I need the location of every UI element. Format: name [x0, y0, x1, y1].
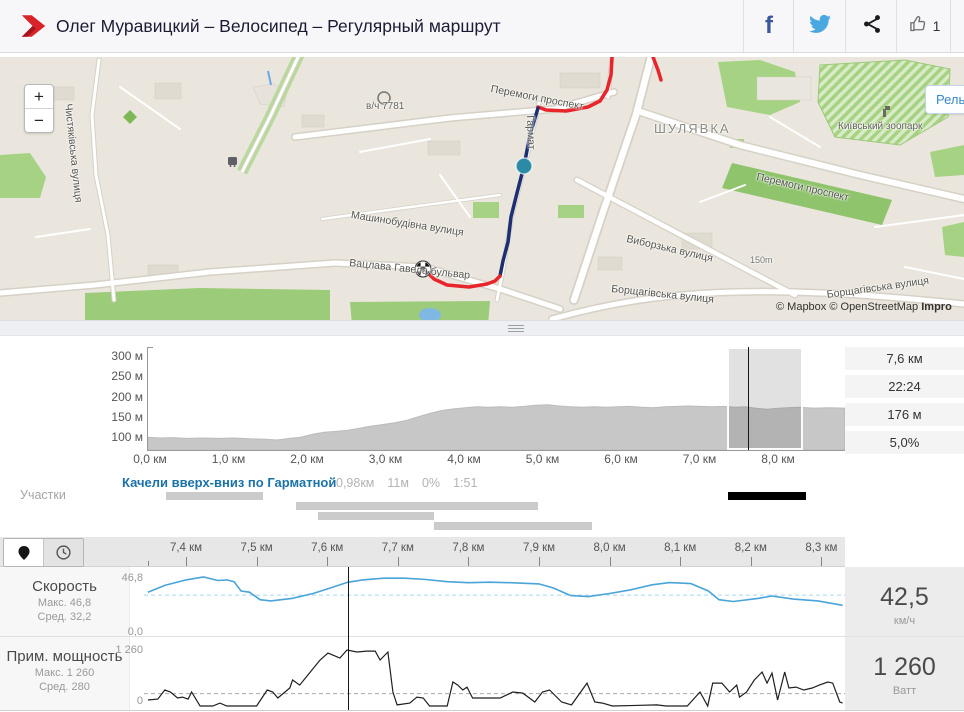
like-button[interactable]: 1	[896, 0, 951, 52]
segment-bar[interactable]	[318, 512, 434, 520]
share-icon	[861, 13, 883, 40]
ruler-tick	[539, 557, 540, 566]
segment-stat: 0,98км	[336, 476, 374, 490]
map-street-label: Гармат	[524, 115, 537, 150]
map-street-label: ШУЛЯВКА	[654, 121, 731, 136]
ruler-tick	[148, 561, 149, 566]
power-chart[interactable]	[130, 637, 845, 710]
elevation-y-tick: 250 м	[98, 369, 143, 383]
speed-current-value: 42,5	[845, 583, 964, 612]
ruler-tick	[257, 557, 258, 566]
ruler-label: 7,6 км	[302, 542, 352, 554]
elevation-y-tick: 200 м	[98, 390, 143, 404]
speed-unit: км/ч	[845, 615, 964, 627]
ruler-tick	[398, 557, 399, 566]
axis-mode-toggle	[3, 538, 84, 567]
elevation-x-tick: 4,0 км	[439, 452, 489, 466]
ruler-label: 7,4 км	[161, 542, 211, 554]
ruler-label: 7,8 км	[443, 542, 493, 554]
current-position-marker[interactable]	[516, 158, 532, 174]
site-logo-icon[interactable]	[20, 14, 47, 43]
elevation-stat-value: 22:24	[845, 375, 964, 398]
elevation-stat-value: 7,6 км	[845, 347, 964, 370]
power-max-label: Макс. 1 260	[0, 667, 129, 679]
elevation-y-tick: 150 м	[98, 410, 143, 424]
power-value-panel: 1 260 Ватт	[845, 637, 964, 710]
power-series	[148, 650, 843, 706]
route-red-stub	[653, 57, 661, 80]
elevation-x-tick: 0,0 км	[125, 452, 175, 466]
share-button[interactable]	[845, 0, 897, 52]
ruler-label: 8,1 км	[655, 542, 705, 554]
terrain-toggle-button[interactable]: Рель	[925, 85, 964, 114]
ruler-label: 7,5 км	[232, 542, 282, 554]
elevation-y-tick: 300 м	[98, 349, 143, 363]
elevation-x-axis	[147, 450, 962, 451]
power-unit: Ватт	[845, 685, 964, 697]
elevation-profile-chart[interactable]	[0, 334, 964, 460]
elevation-selection-window[interactable]	[727, 347, 803, 450]
segment-stat: 0%	[422, 476, 440, 490]
segment-title-link[interactable]: Качели вверх-вниз по Гарматной	[122, 475, 336, 490]
twitter-icon	[808, 12, 832, 41]
segment-bar-selected[interactable]	[728, 492, 806, 500]
map-zoom-control: + −	[24, 84, 54, 133]
facebook-share-button[interactable]: f	[743, 0, 794, 52]
ruler-tick	[186, 557, 187, 566]
ruler-tick	[821, 557, 822, 566]
elevation-x-tick: 7,0 км	[675, 452, 725, 466]
elevation-y-tick: 100 м	[98, 430, 143, 444]
segment-bar[interactable]	[434, 522, 592, 530]
ruler-tick	[468, 557, 469, 566]
map-street-label: в/ч 7781	[366, 101, 404, 112]
elevation-y-axis-top-tick	[147, 347, 153, 348]
bottom-cursor-line	[348, 567, 349, 710]
thumbs-up-icon	[908, 14, 928, 39]
elevation-y-axis	[147, 347, 148, 450]
segments-section-label: Участки	[20, 488, 66, 502]
comment-button[interactable]	[950, 0, 964, 52]
ruler-tick	[610, 557, 611, 566]
ruler-label: 7,7 км	[373, 542, 423, 554]
like-count: 1	[933, 18, 941, 34]
elevation-x-tick: 1,0 км	[204, 452, 254, 466]
ruler-label: 8,3 км	[796, 542, 846, 554]
segment-stats: 0,98км11м0%1:51	[336, 476, 477, 490]
speed-series	[148, 577, 843, 605]
elevation-cursor-line	[748, 347, 749, 450]
elevation-x-tick: 3,0 км	[361, 452, 411, 466]
ruler-tick	[680, 557, 681, 566]
bottom-divider	[0, 710, 964, 711]
time-mode-button[interactable]	[43, 539, 83, 566]
map-street-label: Київський зоопарк	[838, 121, 922, 132]
map-pin-icon	[17, 544, 31, 562]
tree-lined-road	[242, 57, 300, 172]
ruler-label: 8,0 км	[585, 542, 635, 554]
speed-max-label: Макс. 46,8	[0, 597, 129, 609]
elevation-x-tick: 2,0 км	[282, 452, 332, 466]
segment-bar[interactable]	[296, 502, 538, 510]
elevation-stat-value: 176 м	[845, 403, 964, 426]
map-attribution[interactable]: © Mapbox © OpenStreetMap Impro	[776, 301, 952, 313]
segment-bar[interactable]	[166, 492, 263, 500]
elevation-stat-value: 5,0%	[845, 431, 964, 454]
speed-avg-label: Сред. 32,2	[0, 611, 129, 623]
ruler-tick	[327, 557, 328, 566]
twitter-share-button[interactable]	[793, 0, 846, 52]
elevation-x-tick: 8,0 км	[753, 452, 803, 466]
speed-chart[interactable]	[130, 567, 845, 636]
power-avg-label: Сред. 280	[0, 681, 129, 693]
map-street-label: 150m	[750, 255, 773, 265]
facebook-icon: f	[765, 12, 773, 40]
distance-mode-button[interactable]	[4, 539, 43, 566]
power-current-value: 1 260	[845, 653, 964, 682]
zoom-in-button[interactable]: +	[25, 85, 53, 109]
segment-stat: 11м	[387, 476, 409, 490]
clock-icon	[55, 544, 72, 561]
route-map[interactable]: + − Рель © Mapbox © OpenStreetMap Impro …	[0, 57, 964, 320]
ruler-label: 8,2 км	[726, 542, 776, 554]
speed-value-panel: 42,5 км/ч	[845, 567, 964, 636]
header: Олег Муравицкий – Велосипед – Регулярный…	[0, 0, 964, 53]
ruler-tick	[751, 557, 752, 566]
page-title: Олег Муравицкий – Велосипед – Регулярный…	[56, 0, 501, 52]
ruler-label: 7,9 км	[514, 542, 564, 554]
elevation-x-tick: 6,0 км	[596, 452, 646, 466]
activity-page: Олег Муравицкий – Велосипед – Регулярный…	[0, 0, 964, 712]
bus-stop-icon	[228, 157, 237, 167]
zoom-out-button[interactable]: −	[25, 109, 53, 132]
elevation-x-tick: 5,0 км	[518, 452, 568, 466]
segment-stat: 1:51	[453, 476, 477, 490]
